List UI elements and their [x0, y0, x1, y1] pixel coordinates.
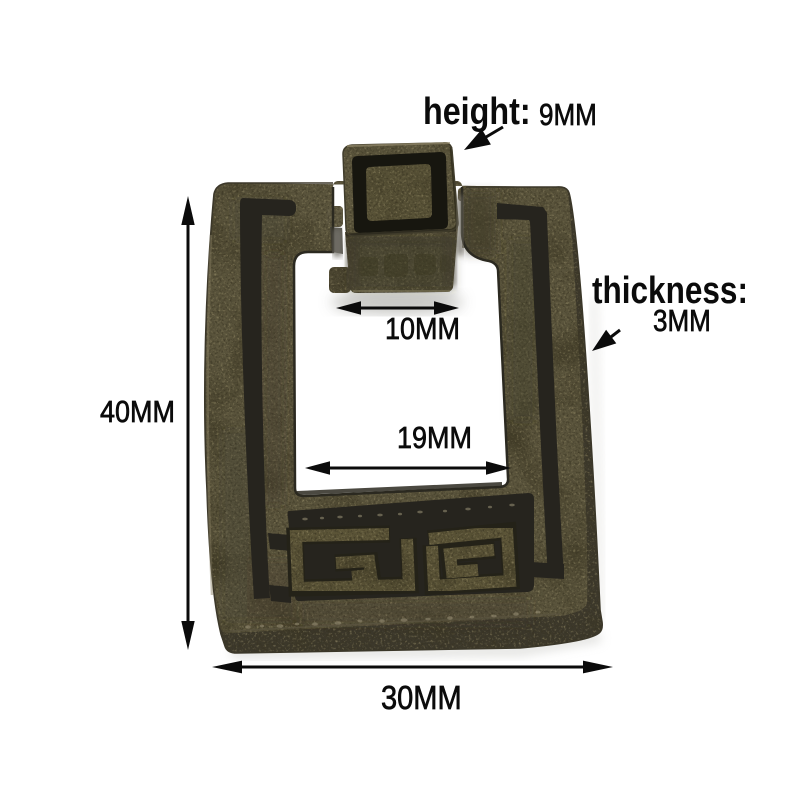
svg-text:10MM: 10MM — [385, 312, 460, 346]
svg-text:height:: height: — [423, 91, 531, 133]
svg-text:19MM: 19MM — [397, 421, 472, 455]
svg-text:3MM: 3MM — [653, 304, 711, 339]
svg-text:30MM: 30MM — [381, 679, 462, 716]
svg-text:40MM: 40MM — [100, 395, 175, 429]
svg-text:9MM: 9MM — [539, 98, 597, 133]
